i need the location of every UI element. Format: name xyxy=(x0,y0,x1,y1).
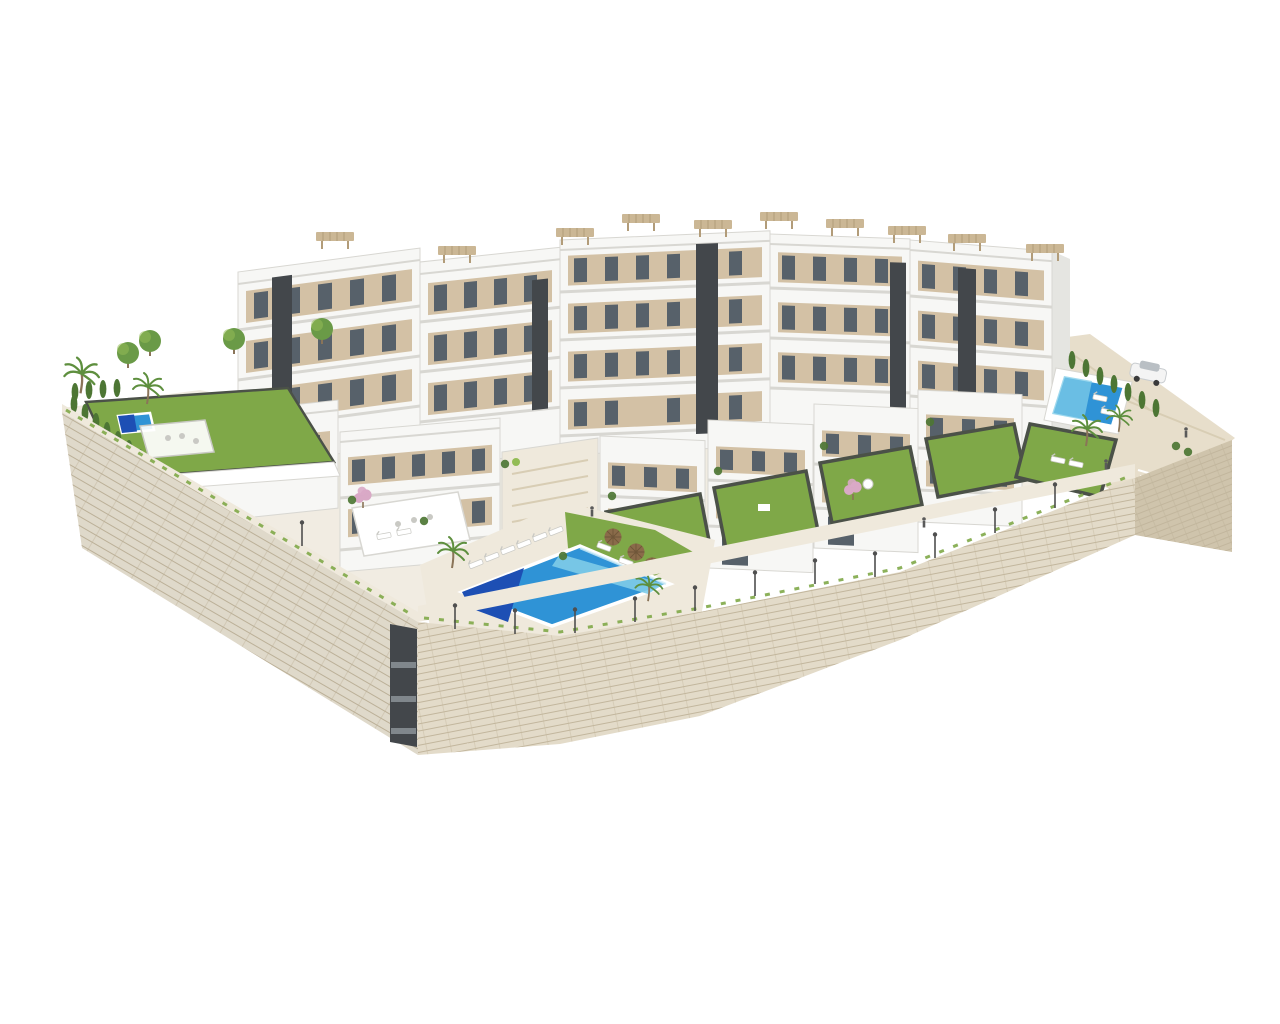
wall-stair-core xyxy=(390,624,417,747)
bush xyxy=(714,467,722,475)
cypress-tree xyxy=(1139,391,1146,409)
bush xyxy=(348,496,356,504)
garden-table xyxy=(863,479,873,489)
person xyxy=(922,517,926,527)
street-lamp xyxy=(933,532,937,558)
cypress-tree xyxy=(114,379,121,397)
street-lamp xyxy=(873,551,877,577)
person xyxy=(1104,459,1108,469)
bush xyxy=(501,460,509,468)
pool-umbrella xyxy=(628,544,645,561)
rooftop-pergola xyxy=(760,212,798,229)
bush xyxy=(608,492,616,500)
pool-umbrella xyxy=(605,529,622,546)
bush xyxy=(926,418,934,426)
cypress-tree xyxy=(1125,383,1132,401)
cypress-tree xyxy=(1083,359,1090,377)
stair-core xyxy=(890,262,906,413)
planter xyxy=(512,458,520,466)
rooftop-pergola xyxy=(316,232,354,249)
rooftop-pergola xyxy=(826,219,864,236)
person xyxy=(1184,427,1188,437)
bush xyxy=(559,552,567,560)
cypress-tree xyxy=(72,383,79,401)
bush xyxy=(1172,442,1180,450)
cypress-tree xyxy=(1069,351,1076,369)
cypress-tree xyxy=(100,380,107,398)
street-lamp xyxy=(753,570,757,596)
cypress-tree xyxy=(1097,367,1104,385)
rooftop-pergola xyxy=(622,214,660,231)
windows xyxy=(612,466,689,489)
ornamental-tree xyxy=(117,342,139,368)
cypress-tree xyxy=(1153,399,1160,417)
person xyxy=(590,506,594,516)
garden-pergola xyxy=(140,420,214,458)
render-canvas: Aerial 3D render of a new-build hillside… xyxy=(0,0,1280,1024)
garden-table xyxy=(758,504,770,511)
bush xyxy=(820,442,828,450)
ornamental-tree xyxy=(139,330,161,356)
palm-tree xyxy=(64,358,98,394)
architectural-render: Aerial 3D render of a new-build hillside… xyxy=(0,0,1280,1024)
cypress-tree xyxy=(86,381,93,399)
bush xyxy=(420,517,428,525)
windows xyxy=(720,450,797,473)
stair-core xyxy=(696,243,718,434)
bush xyxy=(1184,448,1192,456)
cypress-tree xyxy=(1111,375,1118,393)
stair-core xyxy=(532,279,548,411)
